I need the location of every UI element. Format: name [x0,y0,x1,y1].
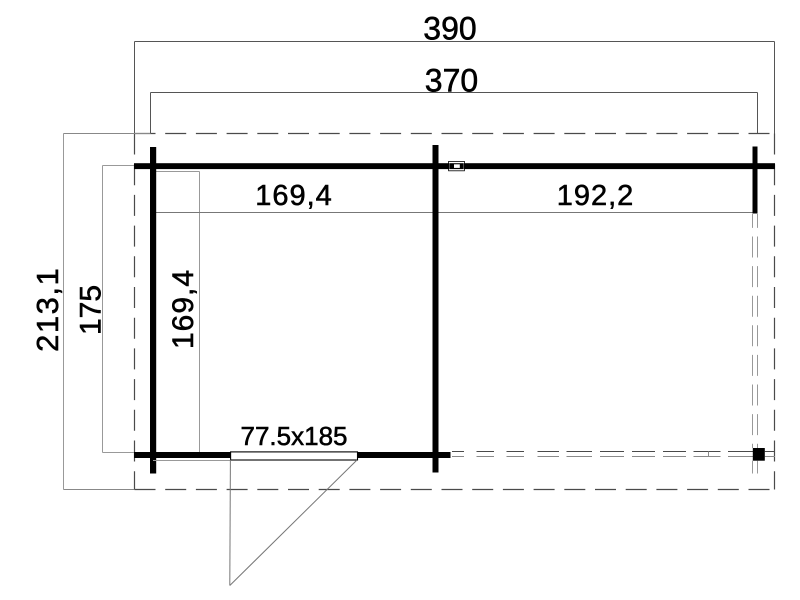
svg-text:169,4: 169,4 [167,269,200,349]
svg-text:175: 175 [75,285,108,335]
svg-text:213,1: 213,1 [30,267,65,352]
svg-text:390: 390 [423,11,476,47]
svg-text:192,2: 192,2 [557,180,635,212]
svg-text:370: 370 [425,62,478,98]
svg-text:77.5x185: 77.5x185 [241,421,348,451]
svg-text:169,4: 169,4 [255,180,333,212]
